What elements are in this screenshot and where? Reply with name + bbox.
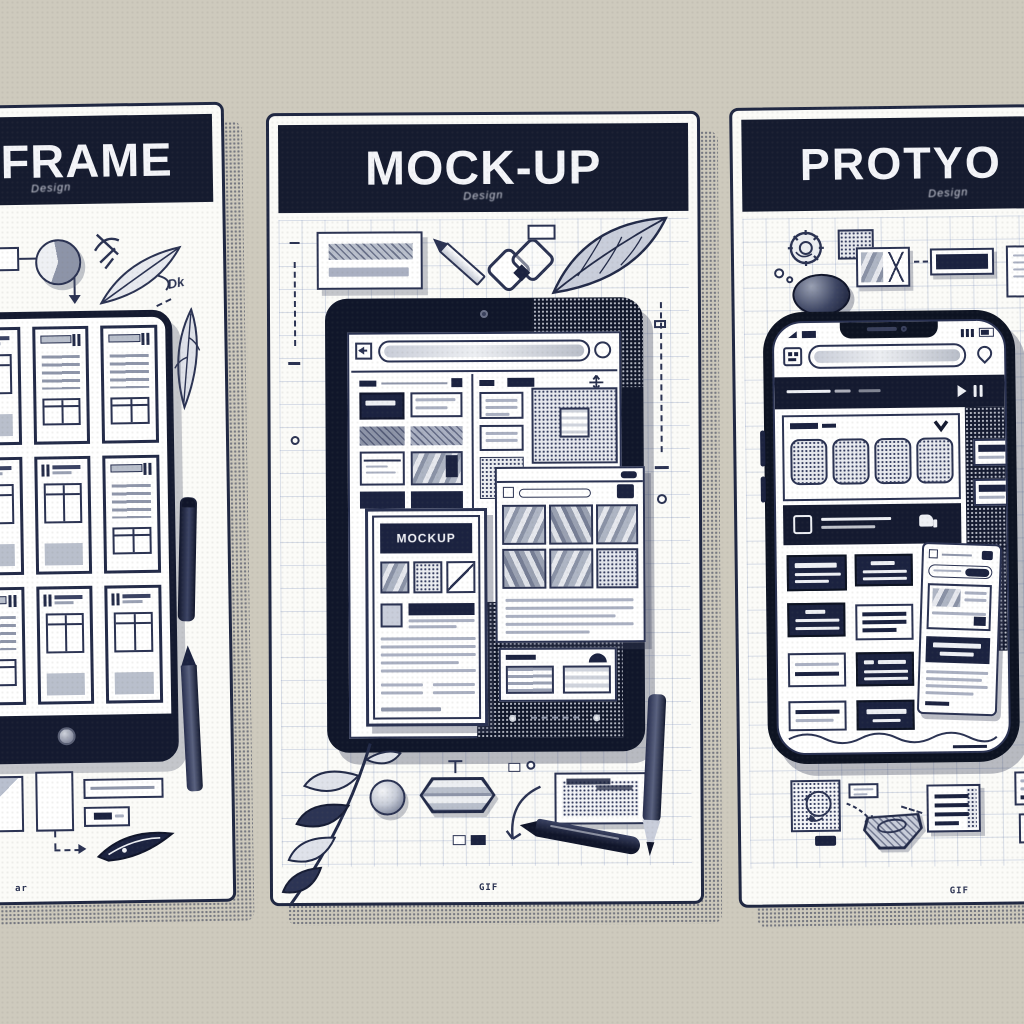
wireframe-header: FRAME Design	[0, 114, 213, 206]
wireframe-paper: FRAME Design Dk	[0, 102, 236, 907]
sketch-detail	[1013, 261, 1024, 263]
sketch-detail	[148, 463, 151, 475]
sketch-detail	[141, 333, 144, 345]
phone-screen	[772, 319, 1011, 756]
sketch-detail	[933, 519, 937, 527]
sketch-detail	[509, 715, 516, 722]
sketch-detail	[433, 683, 475, 686]
sketch-detail	[878, 660, 906, 664]
sketch-detail	[935, 812, 969, 816]
sketch-detail	[965, 568, 989, 577]
sketch-detail	[549, 548, 593, 588]
sketch-detail	[291, 436, 300, 445]
sketch-detail	[961, 329, 964, 337]
grid-card-light	[788, 653, 846, 688]
wireframe-card	[0, 457, 24, 576]
sketch-detail	[113, 527, 152, 554]
wireframe-grid	[0, 325, 163, 706]
sketch-detail	[1013, 268, 1024, 270]
sketch-detail	[41, 465, 44, 477]
thumb-up-icon	[919, 514, 933, 526]
sketch-detail	[796, 719, 834, 722]
sketch-detail	[289, 838, 335, 862]
mockup-paper: MOCK-UP Design	[266, 111, 704, 906]
sketch-detail	[294, 262, 296, 346]
sketch-detail	[786, 276, 793, 283]
sketch-detail	[788, 352, 792, 356]
sketch-detail	[926, 583, 991, 631]
sketch-detail	[1013, 254, 1024, 256]
sketch-detail	[182, 497, 195, 507]
partial-card-doodle	[1019, 813, 1024, 843]
sketch-detail	[359, 381, 376, 387]
sketch-detail	[381, 653, 476, 656]
sketch-detail	[408, 603, 474, 615]
flow-box-doodle	[0, 247, 19, 272]
partial-card-doodle	[1014, 771, 1024, 806]
sketch-detail	[446, 561, 475, 593]
side-button	[761, 477, 766, 503]
sketch-detail	[798, 788, 836, 828]
lined-card-doodle	[1006, 245, 1024, 298]
sketch-detail	[978, 456, 1004, 459]
sketch-detail	[802, 331, 816, 338]
sketch-detail	[110, 354, 149, 388]
sketch-detail	[655, 466, 669, 469]
grid-card-light	[855, 604, 913, 641]
sketch-detail	[864, 670, 908, 674]
sketch-detail	[0, 616, 16, 650]
sketch-detail	[479, 392, 523, 419]
gem-bowl-doodle	[863, 809, 924, 852]
sketch-detail	[901, 326, 907, 332]
sketch-detail	[485, 406, 517, 409]
sketch-detail	[774, 268, 784, 278]
grid-card-dark	[855, 554, 913, 587]
sketch-detail	[790, 423, 818, 429]
side-button	[760, 431, 765, 467]
sketch-detail	[964, 598, 986, 602]
sketch-detail	[304, 771, 358, 791]
camera-dot	[480, 310, 488, 318]
sketch-detail	[871, 561, 895, 565]
wireframe-card	[105, 585, 164, 704]
sketch-detail	[146, 333, 149, 345]
arrow-head-icon	[78, 844, 86, 854]
prototype-stamp: GIF	[950, 886, 969, 896]
sketch-detail	[0, 484, 14, 525]
sketch-detail	[965, 591, 987, 595]
sketch-detail	[380, 603, 402, 627]
sketch-detail	[508, 763, 520, 772]
sticker-doodle	[815, 836, 836, 846]
handwriting-note: Dk	[166, 274, 185, 292]
sketch-detail	[559, 407, 589, 437]
sketch-detail	[381, 637, 476, 640]
sketch-detail	[814, 349, 960, 363]
sketch-detail	[835, 389, 851, 392]
sketch-detail	[974, 385, 977, 397]
sketch-detail	[283, 868, 321, 893]
dither-card-doodle	[554, 772, 646, 824]
sketch-detail	[932, 588, 961, 607]
sketch-detail	[942, 554, 972, 557]
sketch-detail	[795, 663, 839, 667]
wireframe-stamp: ar	[15, 884, 28, 894]
sketch-detail	[44, 543, 83, 566]
sketch-detail	[471, 835, 486, 845]
sketch-detail	[506, 622, 634, 626]
sketch-detail	[505, 598, 633, 602]
sketch-detail	[115, 814, 124, 817]
sketch-detail	[506, 606, 634, 610]
sketch-detail	[933, 642, 981, 649]
sketch-detail	[935, 794, 969, 798]
sketch-detail	[117, 593, 120, 605]
sketch-detail	[381, 683, 423, 686]
sketch-detail	[502, 549, 546, 589]
sketch-detail	[926, 684, 988, 689]
sketch-detail	[864, 677, 908, 681]
sketch-detail	[506, 630, 590, 633]
wireframe-card	[101, 325, 160, 444]
sketch-detail	[873, 719, 901, 722]
sketch-detail	[0, 544, 15, 567]
doodle-box	[790, 780, 841, 833]
sphere-doodle	[369, 779, 405, 815]
sketch-detail	[506, 655, 536, 660]
mockup-subtitle: Design	[463, 189, 504, 203]
lined-card-doodle	[926, 784, 981, 833]
sketch-detail	[821, 525, 875, 529]
sketch-detail	[1021, 795, 1024, 799]
prototype-title: PROTYO	[742, 137, 1003, 192]
sketch-detail	[866, 709, 906, 714]
sketch-detail	[795, 573, 841, 577]
play-icon	[958, 385, 967, 397]
sketch-detail	[409, 619, 475, 622]
sketch-detail	[451, 378, 462, 387]
pen-nib-icon	[94, 826, 177, 863]
tablet-bottom-bezel	[0, 714, 174, 761]
mockup-card-overlay: MOCKUP	[365, 508, 488, 727]
sketch-detail	[288, 362, 300, 365]
sketch-detail	[413, 561, 442, 593]
sketch-detail	[862, 628, 896, 632]
sketch-detail	[381, 691, 423, 694]
mockup-banner-label: MOCKUP	[396, 531, 455, 545]
sketch-detail	[0, 354, 12, 395]
illustration-canvas: FRAME Design Dk	[0, 0, 1024, 1024]
branch-doodle	[274, 741, 421, 906]
sketch-detail	[795, 563, 837, 569]
sketch-detail	[41, 355, 80, 389]
sketch-detail	[13, 595, 16, 607]
sketch-detail	[526, 761, 535, 770]
mockup-banner: MOCKUP	[380, 523, 472, 553]
sketch-detail	[788, 358, 796, 361]
sketch-detail	[366, 471, 396, 473]
sketch-detail	[507, 378, 534, 387]
sketch-detail	[381, 382, 447, 384]
sketch-detail	[914, 261, 928, 263]
sketch-detail	[926, 670, 988, 675]
mini-window-sketch	[360, 451, 405, 485]
chevron-down-icon	[932, 417, 950, 433]
grid-card-dark	[787, 555, 847, 592]
wireframe-card	[36, 586, 95, 705]
sketch-detail	[411, 426, 463, 445]
sketch-detail	[966, 329, 969, 337]
sketch-detail	[506, 614, 616, 618]
gem-doodle	[419, 777, 495, 813]
sketch-detail	[410, 392, 462, 417]
banner-card-doodle	[317, 231, 423, 290]
sketch-detail	[502, 505, 546, 545]
sketch-detail	[654, 320, 666, 328]
sketch-detail	[596, 504, 638, 544]
sketch-detail	[486, 432, 518, 435]
sketch-detail	[936, 254, 988, 270]
sketch-detail	[935, 421, 947, 429]
sketch-detail	[593, 714, 600, 721]
sketch-detail	[929, 549, 938, 558]
wireframe-card	[0, 587, 26, 706]
sketch-detail	[351, 369, 617, 372]
sketch-detail	[42, 398, 81, 425]
squiggle-divider	[787, 729, 999, 746]
sketch-detail	[854, 793, 868, 795]
sketch-detail	[547, 218, 673, 293]
mockup-header: MOCK-UP Design	[278, 123, 688, 213]
sketch-detail	[1020, 779, 1024, 782]
sketch-detail	[0, 342, 1, 345]
sketch-detail	[974, 617, 986, 626]
sketch-detail	[123, 600, 142, 603]
sketch-detail	[979, 485, 1007, 492]
sketch-detail	[506, 666, 554, 694]
sketch-detail	[453, 835, 466, 845]
sketch-detail	[415, 406, 447, 409]
sketch-detail	[0, 466, 11, 470]
sketch-detail	[433, 691, 475, 694]
sketch-detail	[156, 298, 171, 307]
sketch-detail	[822, 424, 836, 428]
sketch-detail	[979, 496, 1005, 499]
sketch-detail	[795, 710, 839, 715]
sketch-detail	[953, 745, 987, 748]
sketch-detail	[793, 515, 812, 534]
sketch-detail	[123, 594, 151, 598]
wireframe-card	[0, 327, 22, 446]
sketch-detail	[0, 414, 13, 437]
sketch-detail	[422, 780, 492, 810]
panel-wireframe: FRAME Design Dk	[0, 102, 236, 907]
sketch-detail	[360, 426, 405, 445]
sketch-detail	[178, 497, 197, 621]
sketch-detail	[181, 665, 203, 792]
dome-icon	[589, 653, 607, 662]
sketch-detail	[940, 652, 974, 657]
sketch-detail	[859, 389, 881, 392]
sketch-detail	[454, 761, 456, 773]
list-row-dark	[783, 503, 961, 545]
sketch-detail	[480, 425, 524, 451]
sketch-detail	[290, 242, 300, 244]
sketch-detail	[115, 671, 154, 694]
sketch-detail	[358, 347, 364, 355]
blank-card-box	[35, 771, 74, 832]
sketch-detail	[381, 661, 459, 664]
sketch-detail	[596, 548, 638, 588]
sketch-detail	[448, 760, 462, 762]
wireframe-card	[34, 456, 93, 575]
sketch-detail	[848, 783, 878, 798]
sketch-detail	[360, 491, 405, 508]
wireframe-title: FRAME	[0, 131, 173, 189]
sketch-detail	[54, 601, 73, 604]
sketch-detail	[8, 595, 11, 607]
sketch-detail	[861, 252, 883, 282]
sketch-detail	[795, 619, 839, 623]
sketch-detail	[787, 390, 831, 394]
sketch-detail	[54, 831, 56, 849]
sketch-detail	[446, 455, 458, 477]
sketch-detail	[563, 665, 611, 693]
sketch-detail	[916, 437, 954, 483]
sketch-detail	[112, 593, 115, 605]
prototype-subtitle: Design	[928, 186, 969, 200]
sketch-detail	[863, 570, 907, 574]
sketch-detail	[794, 352, 798, 356]
grid-card-light	[788, 701, 846, 732]
battery-icon	[979, 328, 994, 337]
sketch-detail	[971, 329, 974, 337]
sketch-detail	[549, 504, 593, 544]
sketch-detail	[366, 751, 400, 763]
sketch-detail	[862, 620, 906, 625]
sketch-detail	[40, 335, 72, 343]
phone-device	[763, 309, 1021, 764]
sketch-detail	[795, 580, 829, 583]
sketch-detail	[54, 595, 82, 599]
sketch-detail	[46, 673, 85, 696]
sketch-detail	[1020, 787, 1024, 790]
sketch-detail	[982, 551, 993, 560]
prototype-header: PROTYO Design	[741, 116, 1024, 212]
sketch-detail	[805, 610, 825, 614]
footer-inset-card	[499, 647, 617, 702]
browser-action-icon	[594, 341, 611, 358]
sketch-detail	[78, 334, 81, 346]
sketch-detail	[486, 439, 518, 442]
sketch-detail	[789, 732, 997, 744]
sketch-detail	[384, 344, 584, 357]
prototype-paper: PROTYO Design	[729, 104, 1024, 908]
sketch-detail	[43, 483, 82, 524]
sketch-detail	[329, 243, 413, 259]
sketch-detail	[73, 334, 76, 346]
sketch-detail	[109, 334, 141, 342]
arrow-head-icon	[69, 295, 81, 304]
sketch-detail	[409, 625, 457, 628]
sketch-detail	[885, 252, 907, 282]
sketch-detail	[1013, 275, 1024, 277]
sketch-detail	[364, 459, 401, 461]
sketch-detail	[864, 660, 874, 664]
sketch-detail	[52, 465, 80, 469]
sketch-detail	[381, 669, 476, 672]
sketch-detail	[821, 517, 891, 521]
sketch-detail	[411, 491, 463, 508]
sketch-detail	[790, 439, 828, 485]
sketch-detail	[974, 479, 1011, 506]
sketch-detail	[566, 778, 610, 784]
sketch-detail	[935, 821, 959, 825]
sketch-detail	[657, 494, 667, 504]
sketch-detail	[926, 677, 982, 682]
sketch-detail	[925, 691, 973, 696]
sketch-detail	[503, 487, 514, 498]
dark-bar-card-doodle	[930, 248, 994, 276]
mini-dark-label	[925, 636, 990, 664]
tablet-sketch	[0, 310, 179, 765]
droplet-icon	[974, 343, 995, 364]
sketch-detail	[932, 611, 986, 616]
sketch-detail	[621, 471, 637, 478]
sketch-detail	[143, 463, 146, 475]
thumbnails-card	[782, 413, 961, 501]
sketch-detail	[0, 659, 17, 686]
sketch-detail	[365, 400, 395, 405]
sketch-detail	[935, 803, 969, 807]
sketch-detail	[43, 595, 46, 607]
sketch-detail	[54, 849, 80, 851]
sketch-detail	[48, 594, 51, 606]
sketch-detail	[52, 471, 71, 474]
leaf-large-doodle	[542, 208, 678, 304]
sketch-detail	[112, 484, 151, 518]
sketch-detail	[978, 445, 1006, 452]
sketch-detail	[380, 561, 409, 593]
sketch-detail	[980, 385, 983, 397]
photo-window-overlay	[495, 466, 646, 643]
sketch-detail	[795, 672, 839, 677]
signal-icon	[788, 331, 797, 338]
gear-doodle-icon	[782, 226, 829, 273]
grid-card-dark	[856, 652, 914, 687]
sketch-detail	[925, 701, 949, 706]
mockup-stamp: GIF	[479, 883, 498, 893]
nav-band	[774, 375, 1004, 410]
sketch-detail	[795, 627, 839, 631]
grid-menu-icon	[783, 347, 802, 366]
sketch-detail	[46, 464, 49, 476]
sketch-detail	[853, 788, 873, 790]
sketch-detail	[497, 480, 643, 483]
sketch-detail	[617, 484, 634, 498]
sketch-detail	[366, 466, 388, 468]
sketch-detail	[596, 785, 632, 790]
sketch-detail	[867, 327, 897, 331]
sketch-detail	[485, 413, 509, 416]
envelope-sketch-icon	[856, 247, 910, 288]
sketch-detail	[973, 439, 1011, 466]
marker-pen-icon	[178, 497, 197, 621]
pencil-icon	[180, 645, 203, 792]
sketch-detail	[863, 577, 907, 581]
sketch-detail	[646, 842, 655, 856]
